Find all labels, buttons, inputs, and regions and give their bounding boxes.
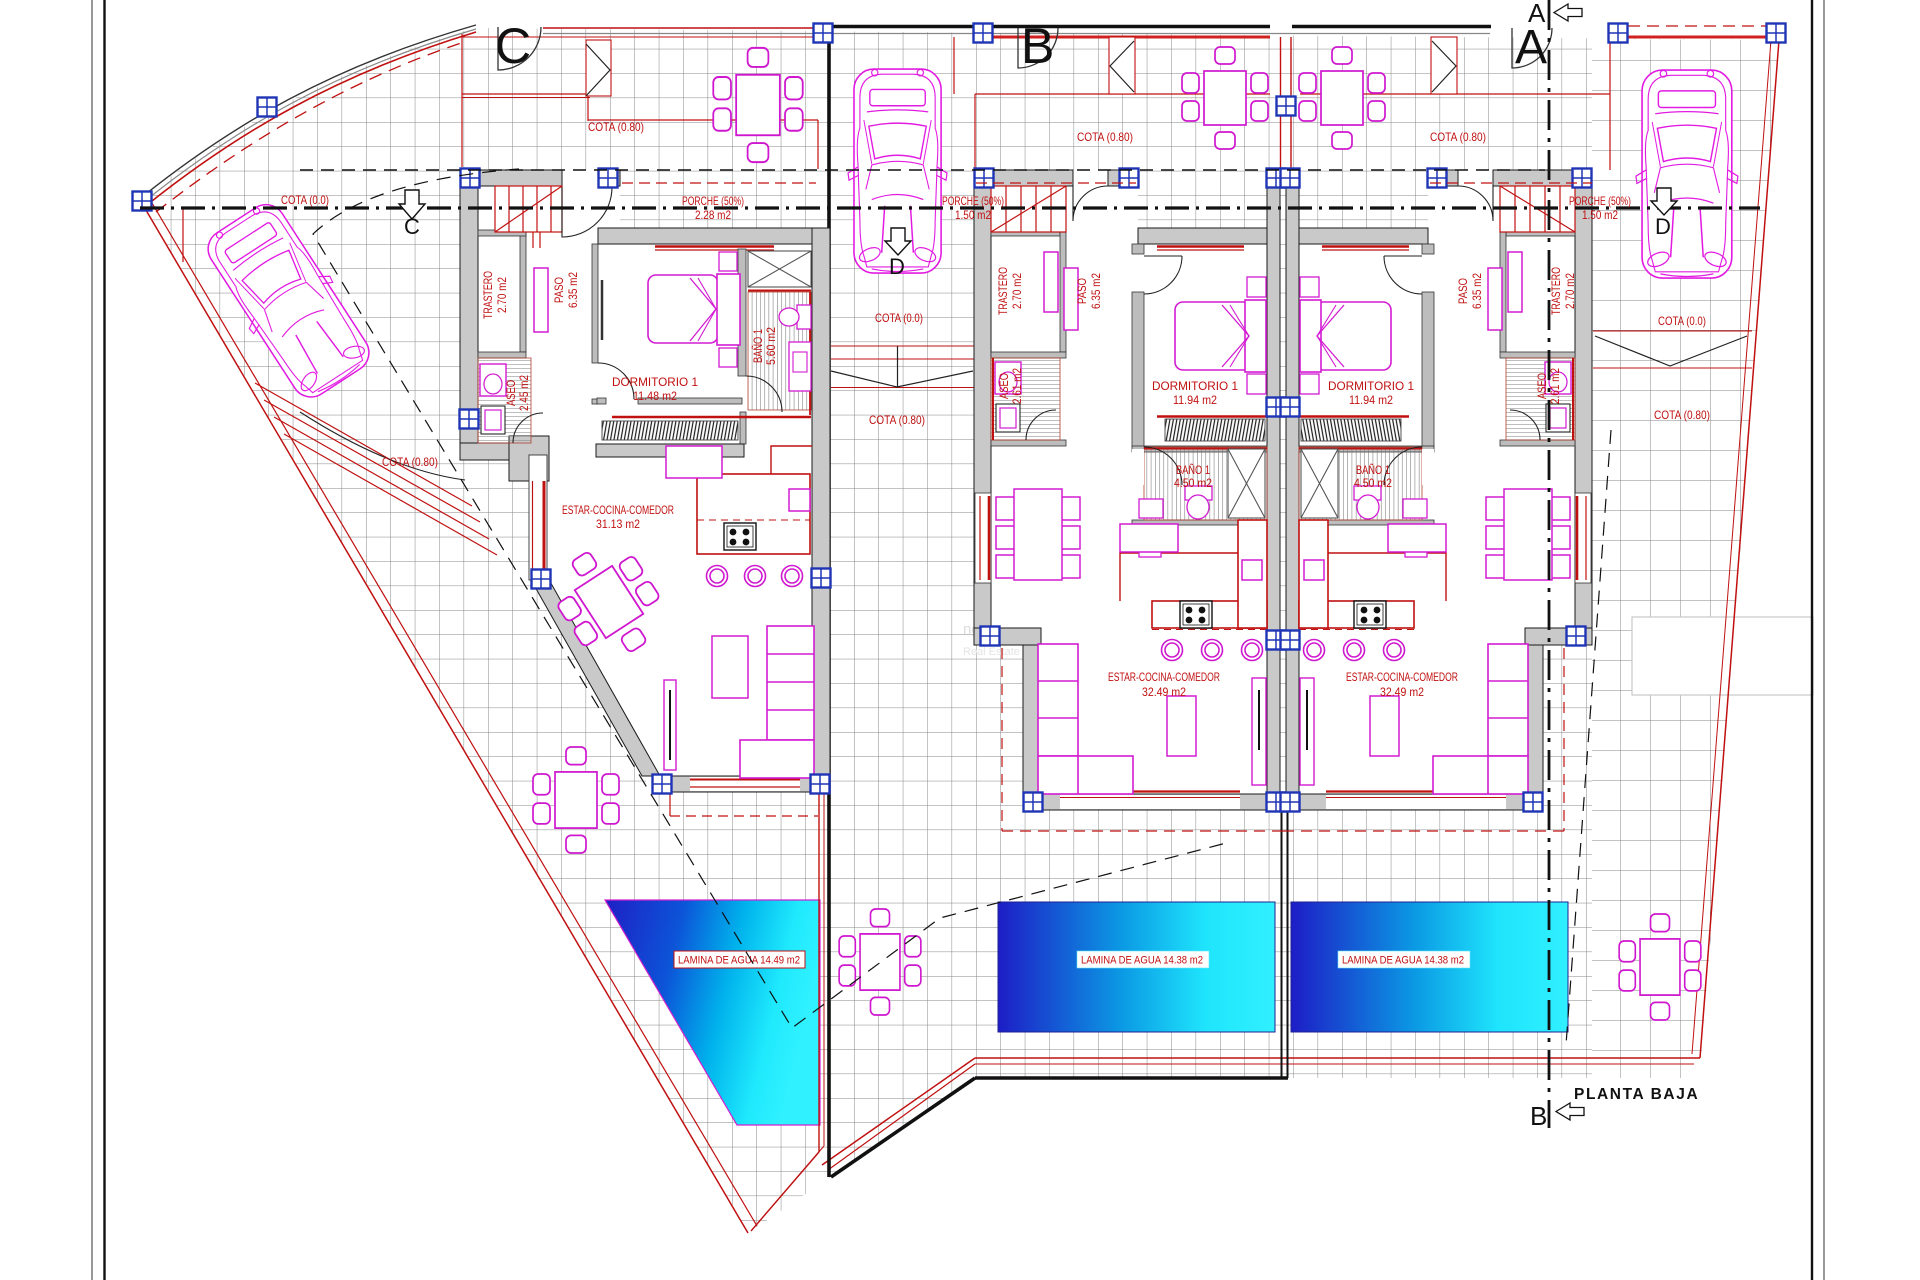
svg-text:6.35 m2: 6.35 m2 bbox=[566, 272, 580, 308]
svg-text:PORCHE (50%): PORCHE (50%) bbox=[682, 194, 744, 208]
svg-text:4.50 m2: 4.50 m2 bbox=[1174, 478, 1212, 490]
svg-text:2.61 m2: 2.61 m2 bbox=[1012, 368, 1024, 404]
svg-text:2.28 m2: 2.28 m2 bbox=[695, 208, 731, 222]
svg-text:C: C bbox=[404, 214, 420, 239]
svg-text:COTA (0.0): COTA (0.0) bbox=[875, 311, 923, 325]
svg-text:TRASTERO: TRASTERO bbox=[996, 267, 1010, 315]
svg-text:PASO: PASO bbox=[1075, 278, 1089, 304]
svg-text:32.49 m2: 32.49 m2 bbox=[1142, 685, 1186, 699]
svg-text:ESTAR-COCINA-COMEDOR: ESTAR-COCINA-COMEDOR bbox=[1108, 670, 1220, 684]
svg-text:32.49 m2: 32.49 m2 bbox=[1380, 685, 1424, 699]
svg-text:1.50 m2: 1.50 m2 bbox=[1582, 208, 1618, 222]
svg-text:COTA (0.80): COTA (0.80) bbox=[1430, 130, 1486, 144]
svg-text:1.50 m2: 1.50 m2 bbox=[955, 208, 991, 222]
svg-text:DORMITORIO 1: DORMITORIO 1 bbox=[612, 375, 698, 389]
svg-text:4.50 m2: 4.50 m2 bbox=[1354, 478, 1392, 490]
svg-text:C: C bbox=[495, 18, 531, 74]
svg-text:PORCHE (50%): PORCHE (50%) bbox=[1569, 194, 1631, 208]
svg-text:TRASTERO: TRASTERO bbox=[1549, 267, 1563, 315]
svg-text:6.35 m2: 6.35 m2 bbox=[1089, 273, 1103, 309]
svg-text:LAMINA DE AGUA 14.38 m2: LAMINA DE AGUA 14.38 m2 bbox=[1081, 955, 1203, 967]
svg-text:COTA (0.0): COTA (0.0) bbox=[1658, 314, 1706, 328]
svg-text:A: A bbox=[1515, 21, 1547, 74]
svg-text:11.94 m2: 11.94 m2 bbox=[1173, 393, 1217, 407]
svg-text:ESTAR-COCINA-COMEDOR: ESTAR-COCINA-COMEDOR bbox=[562, 503, 674, 517]
svg-text:D: D bbox=[1655, 214, 1671, 239]
svg-text:11.94 m2: 11.94 m2 bbox=[1349, 393, 1393, 407]
svg-text:B: B bbox=[1530, 1101, 1547, 1131]
svg-text:TRASTERO: TRASTERO bbox=[481, 271, 495, 319]
svg-text:Real Estate: Real Estate bbox=[963, 646, 1020, 658]
svg-text:2.45 m2: 2.45 m2 bbox=[519, 375, 531, 411]
svg-text:31.13 m2: 31.13 m2 bbox=[596, 517, 640, 531]
svg-text:COTA (0.0): COTA (0.0) bbox=[281, 193, 329, 207]
svg-text:PORCHE (50%): PORCHE (50%) bbox=[942, 194, 1004, 208]
svg-text:PASO: PASO bbox=[1456, 278, 1470, 304]
svg-text:D: D bbox=[889, 254, 905, 279]
svg-text:COTA (0.80): COTA (0.80) bbox=[1654, 408, 1710, 422]
svg-text:COTA (0.80): COTA (0.80) bbox=[1077, 130, 1133, 144]
svg-text:2.70 m2: 2.70 m2 bbox=[1563, 273, 1577, 309]
svg-text:BAÑO 1: BAÑO 1 bbox=[1356, 464, 1390, 477]
svg-text:6.35 m2: 6.35 m2 bbox=[1470, 273, 1484, 309]
svg-text:DORMITORIO 1: DORMITORIO 1 bbox=[1152, 379, 1238, 393]
svg-text:ASEO: ASEO bbox=[1537, 373, 1549, 399]
svg-text:2.70 m2: 2.70 m2 bbox=[495, 277, 509, 313]
svg-text:COTA (0.80): COTA (0.80) bbox=[382, 455, 438, 469]
svg-text:BAÑO 1: BAÑO 1 bbox=[752, 329, 765, 363]
svg-text:11.48 m2: 11.48 m2 bbox=[633, 389, 677, 403]
svg-text:BAÑO 1: BAÑO 1 bbox=[1176, 464, 1210, 477]
svg-text:B: B bbox=[1021, 18, 1054, 74]
svg-text:ASEO: ASEO bbox=[999, 373, 1011, 399]
svg-text:LAMINA DE AGUA 14.49 m2: LAMINA DE AGUA 14.49 m2 bbox=[678, 955, 800, 967]
svg-text:2.70 m2: 2.70 m2 bbox=[1010, 273, 1024, 309]
svg-text:ASEO: ASEO bbox=[506, 380, 518, 406]
svg-text:DORMITORIO 1: DORMITORIO 1 bbox=[1328, 379, 1414, 393]
svg-text:PASO: PASO bbox=[552, 277, 566, 303]
svg-text:5.60 m2: 5.60 m2 bbox=[766, 327, 778, 365]
svg-text:LAMINA DE AGUA 14.38 m2: LAMINA DE AGUA 14.38 m2 bbox=[1342, 955, 1464, 967]
svg-text:COTA (0.80): COTA (0.80) bbox=[588, 120, 644, 134]
svg-text:PLANTA BAJA: PLANTA BAJA bbox=[1574, 1086, 1699, 1103]
svg-text:COTA (0.80): COTA (0.80) bbox=[869, 413, 925, 427]
svg-text:2.61 m2: 2.61 m2 bbox=[1550, 368, 1562, 404]
svg-text:ESTAR-COCINA-COMEDOR: ESTAR-COCINA-COMEDOR bbox=[1346, 670, 1458, 684]
